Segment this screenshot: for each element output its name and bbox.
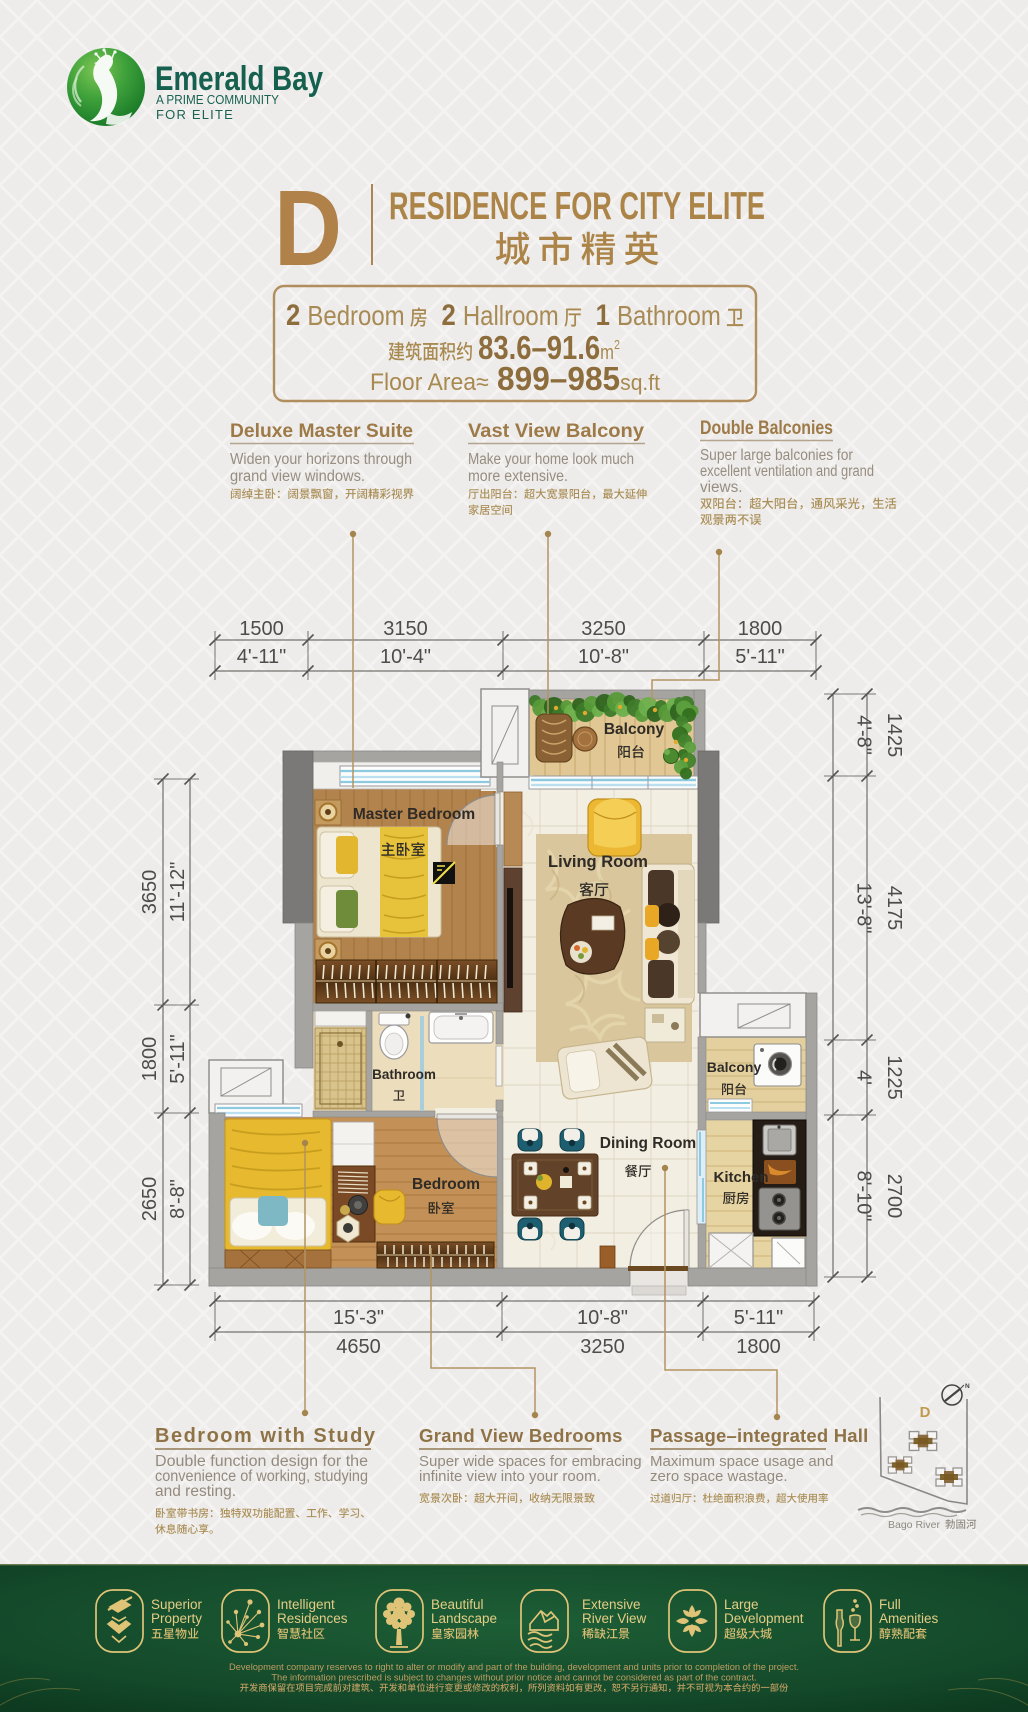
svg-text:1800: 1800 — [738, 618, 783, 640]
svg-text:899–985: 899–985 — [497, 360, 620, 397]
svg-text:Make your home look much: Make your home look much — [468, 451, 634, 468]
svg-text:10'-8": 10'-8" — [577, 1307, 628, 1329]
svg-text:1425: 1425 — [883, 713, 905, 758]
svg-text:Passage–integrated Hall: Passage–integrated Hall — [650, 1425, 868, 1446]
svg-text:FOR ELITE: FOR ELITE — [156, 107, 234, 122]
svg-text:Bedroom: Bedroom — [412, 1176, 480, 1193]
svg-text:1800: 1800 — [736, 1336, 781, 1358]
svg-text:Extensive: Extensive — [582, 1597, 641, 1612]
svg-text:Living Room: Living Room — [548, 853, 648, 871]
svg-text:Property: Property — [151, 1611, 202, 1626]
svg-text:1: 1 — [596, 298, 610, 331]
svg-text:Superior: Superior — [151, 1597, 203, 1612]
svg-text:Balcony: Balcony — [604, 721, 665, 738]
svg-text:1225: 1225 — [883, 1055, 905, 1100]
svg-text:Bedroom: Bedroom — [307, 299, 404, 331]
svg-text:5'-11": 5'-11" — [734, 1307, 783, 1329]
svg-text:8'-8": 8'-8" — [167, 1179, 189, 1219]
svg-text:8'-10": 8'-10" — [853, 1171, 875, 1222]
svg-text:4175: 4175 — [883, 886, 905, 931]
svg-text:infinite view into your room.: infinite view into your room. — [419, 1468, 601, 1485]
svg-text:views.: views. — [700, 479, 743, 496]
svg-text:3250: 3250 — [581, 618, 626, 640]
svg-text:zero space wastage.: zero space wastage. — [650, 1468, 788, 1485]
svg-text:more extensive.: more extensive. — [468, 468, 568, 485]
svg-text:Bago River: Bago River — [888, 1519, 940, 1531]
svg-text:River View: River View — [582, 1611, 647, 1626]
svg-text:3150: 3150 — [383, 618, 428, 640]
svg-text:13'-8": 13'-8" — [853, 883, 875, 934]
svg-text:Deluxe Master Suite: Deluxe Master Suite — [230, 421, 413, 442]
svg-text:3250: 3250 — [580, 1336, 625, 1358]
svg-text:2: 2 — [614, 337, 620, 352]
svg-text:4650: 4650 — [336, 1336, 381, 1358]
svg-text:Large: Large — [724, 1597, 759, 1612]
svg-text:Bedroom with Study: Bedroom with Study — [155, 1425, 376, 1447]
svg-text:5'-11": 5'-11" — [735, 646, 784, 668]
svg-text:Residences: Residences — [277, 1611, 348, 1626]
svg-text:D: D — [920, 1404, 931, 1421]
svg-text:Master Bedroom: Master Bedroom — [353, 806, 475, 823]
svg-text:15'-3": 15'-3" — [333, 1307, 384, 1329]
svg-text:2650: 2650 — [139, 1177, 161, 1222]
svg-text:sq.ft: sq.ft — [620, 371, 660, 396]
svg-text:Vast View Balcony: Vast View Balcony — [468, 421, 644, 442]
svg-text:A PRIME COMMUNITY: A PRIME COMMUNITY — [156, 92, 279, 107]
svg-text:RESIDENCE FOR CITY ELITE: RESIDENCE FOR CITY ELITE — [389, 185, 765, 228]
svg-text:Landscape: Landscape — [431, 1611, 497, 1626]
svg-text:Hallroom: Hallroom — [463, 299, 559, 331]
svg-text:Development company reserves t: Development company reserves to right to… — [229, 1662, 799, 1672]
svg-text:Grand View Bedrooms: Grand View Bedrooms — [419, 1425, 623, 1446]
svg-text:≈: ≈ — [476, 369, 489, 396]
svg-text:Amenities: Amenities — [879, 1611, 939, 1626]
svg-text:D: D — [274, 167, 342, 288]
svg-text:Double Balconies: Double Balconies — [700, 418, 833, 439]
svg-text:The information prescribed is: The information prescribed is subject to… — [271, 1673, 756, 1683]
svg-text:Bathroom: Bathroom — [372, 1067, 436, 1082]
svg-text:Widen your horizons through: Widen your horizons through — [230, 451, 412, 468]
svg-text:4': 4' — [853, 1070, 875, 1085]
svg-text:N: N — [965, 1383, 970, 1390]
svg-text:10'-4": 10'-4" — [380, 646, 431, 668]
svg-text:grand view windows.: grand view windows. — [230, 468, 365, 485]
svg-text:Bathroom: Bathroom — [617, 299, 721, 331]
svg-text:and resting.: and resting. — [155, 1483, 236, 1500]
svg-text:Dining Room: Dining Room — [600, 1135, 696, 1152]
svg-text:10'-8": 10'-8" — [578, 646, 629, 668]
svg-text:Kitchen: Kitchen — [713, 1169, 768, 1186]
svg-text:4'-8": 4'-8" — [853, 715, 875, 755]
svg-text:5'-11": 5'-11" — [167, 1034, 189, 1083]
svg-text:4'-11": 4'-11" — [237, 646, 286, 668]
svg-text:11'-12": 11'-12" — [167, 862, 189, 923]
svg-text:Intelligent: Intelligent — [277, 1597, 335, 1612]
svg-text:excellent ventilation and gran: excellent ventilation and grand — [700, 463, 874, 480]
svg-text:Super large balconies for: Super large balconies for — [700, 447, 853, 464]
svg-text:1500: 1500 — [239, 618, 284, 640]
svg-text:2: 2 — [441, 298, 455, 331]
svg-text:2: 2 — [286, 298, 300, 331]
svg-text:Floor Area: Floor Area — [370, 369, 477, 396]
svg-text:2700: 2700 — [883, 1174, 905, 1219]
svg-text:3650: 3650 — [139, 870, 161, 915]
svg-text:1800: 1800 — [139, 1037, 161, 1082]
svg-text:Full: Full — [879, 1597, 901, 1612]
svg-text:Development: Development — [724, 1611, 804, 1626]
svg-text:Balcony: Balcony — [707, 1059, 762, 1075]
svg-text:Beautiful: Beautiful — [431, 1597, 484, 1612]
